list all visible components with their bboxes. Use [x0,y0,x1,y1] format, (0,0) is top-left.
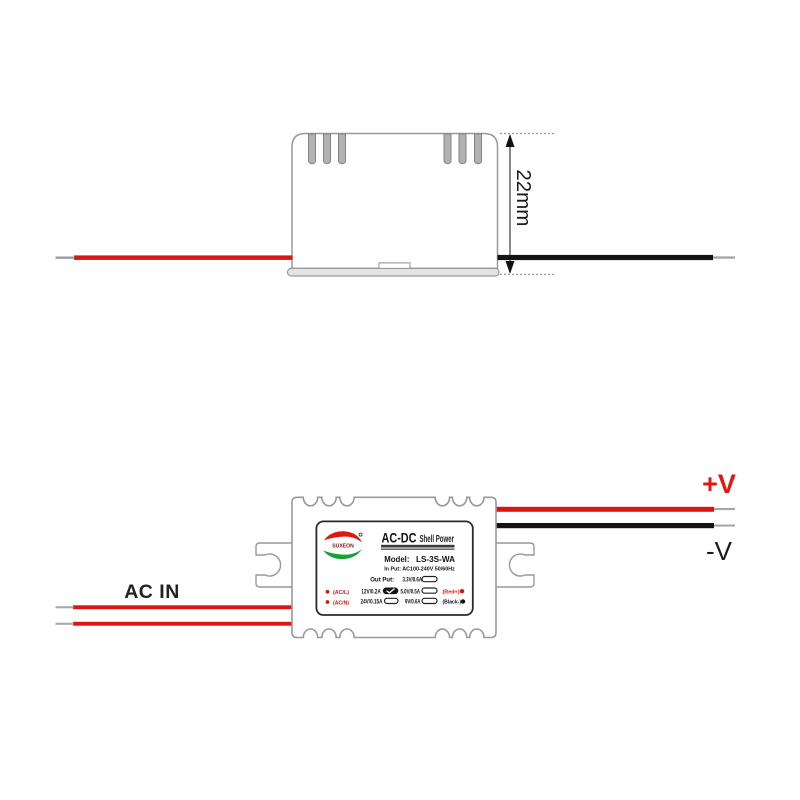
svg-text:+V: +V [702,469,736,499]
svg-text:LS-3S-WA: LS-3S-WA [416,555,455,564]
svg-text:Shell Power: Shell Power [420,533,455,545]
svg-text:(Red+): (Red+) [443,589,460,595]
svg-text:3.3V/0.6A: 3.3V/0.6A [403,578,423,584]
svg-text:SUXEON: SUXEON [332,543,354,549]
svg-text:(AC/N): (AC/N) [333,600,349,606]
svg-text:Out Put:: Out Put: [370,577,394,584]
svg-text:(Black-): (Black-) [443,600,462,606]
svg-text:-V: -V [706,536,733,566]
svg-text:Model:: Model: [384,555,409,564]
svg-text:22mm: 22mm [512,169,535,226]
svg-text:(AC/L): (AC/L) [333,590,349,596]
svg-text:AC-DC: AC-DC [382,529,417,545]
svg-text:24V/0.15A: 24V/0.15A [361,600,384,606]
svg-text:AC IN: AC IN [124,581,180,603]
svg-text:5.0V/0.5A: 5.0V/0.5A [401,589,421,595]
svg-text:12V/0.2A: 12V/0.2A [361,589,381,595]
svg-text:In Put: AC100-240V 50/60Hz: In Put: AC100-240V 50/60Hz [384,567,455,573]
svg-text:9V/0.6A: 9V/0.6A [405,600,421,606]
